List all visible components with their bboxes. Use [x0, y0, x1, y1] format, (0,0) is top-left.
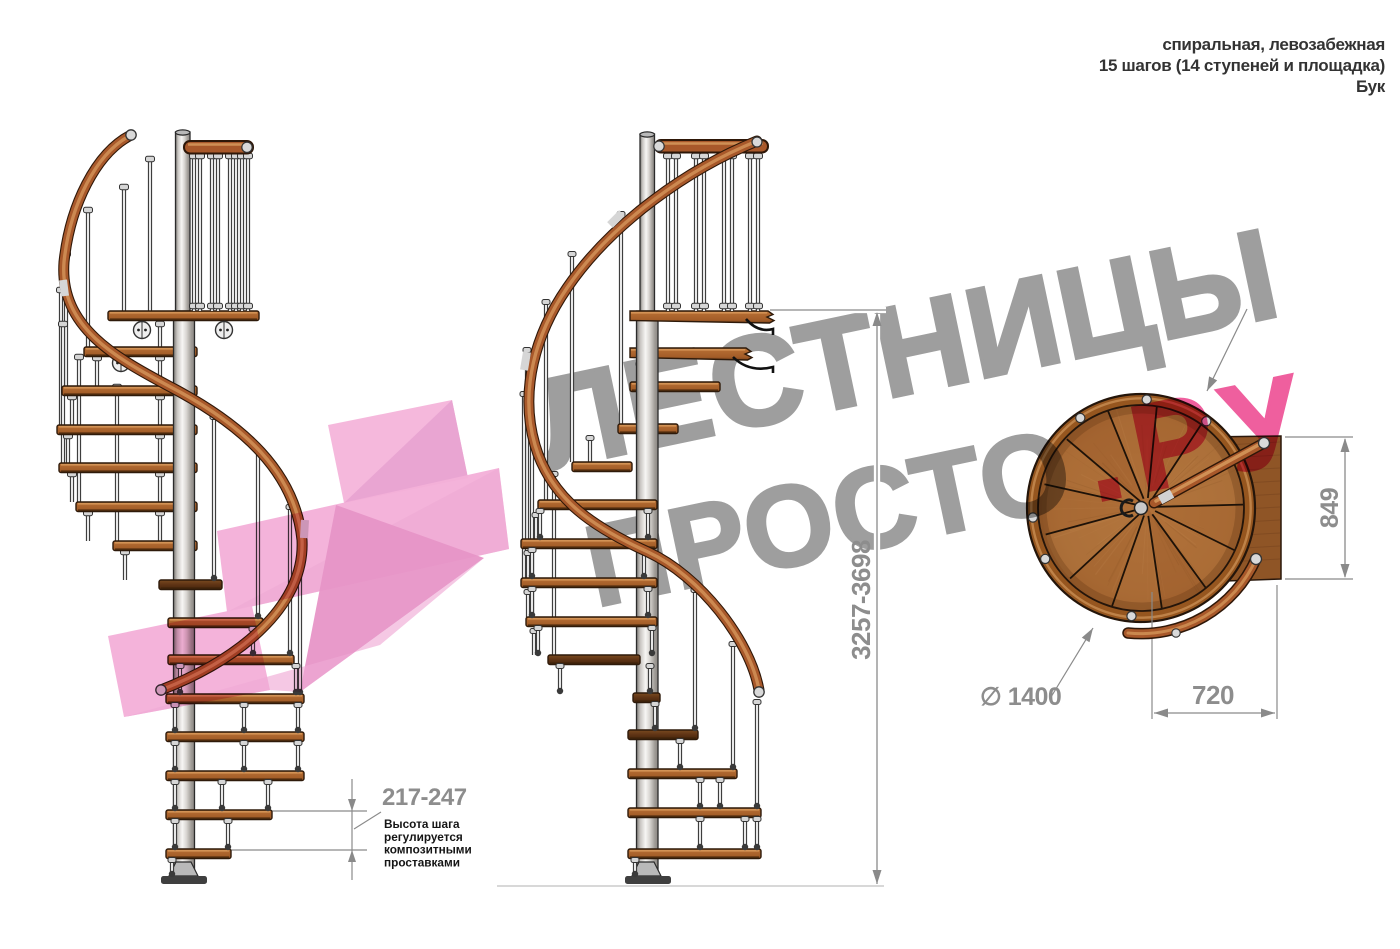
svg-text:3257-3698: 3257-3698 — [846, 540, 876, 660]
svg-text:проставками: проставками — [384, 855, 460, 869]
svg-text:Бук: Бук — [1356, 77, 1386, 96]
svg-text:217-247: 217-247 — [382, 784, 467, 811]
svg-text:720: 720 — [1192, 680, 1234, 710]
svg-text:спиральная, левозабежная: спиральная, левозабежная — [1162, 35, 1385, 54]
svg-text:15 шагов (14 ступеней и площад: 15 шагов (14 ступеней и площадка) — [1099, 56, 1385, 75]
svg-text:849: 849 — [1316, 488, 1344, 528]
svg-text:∅ 1400: ∅ 1400 — [980, 683, 1061, 711]
